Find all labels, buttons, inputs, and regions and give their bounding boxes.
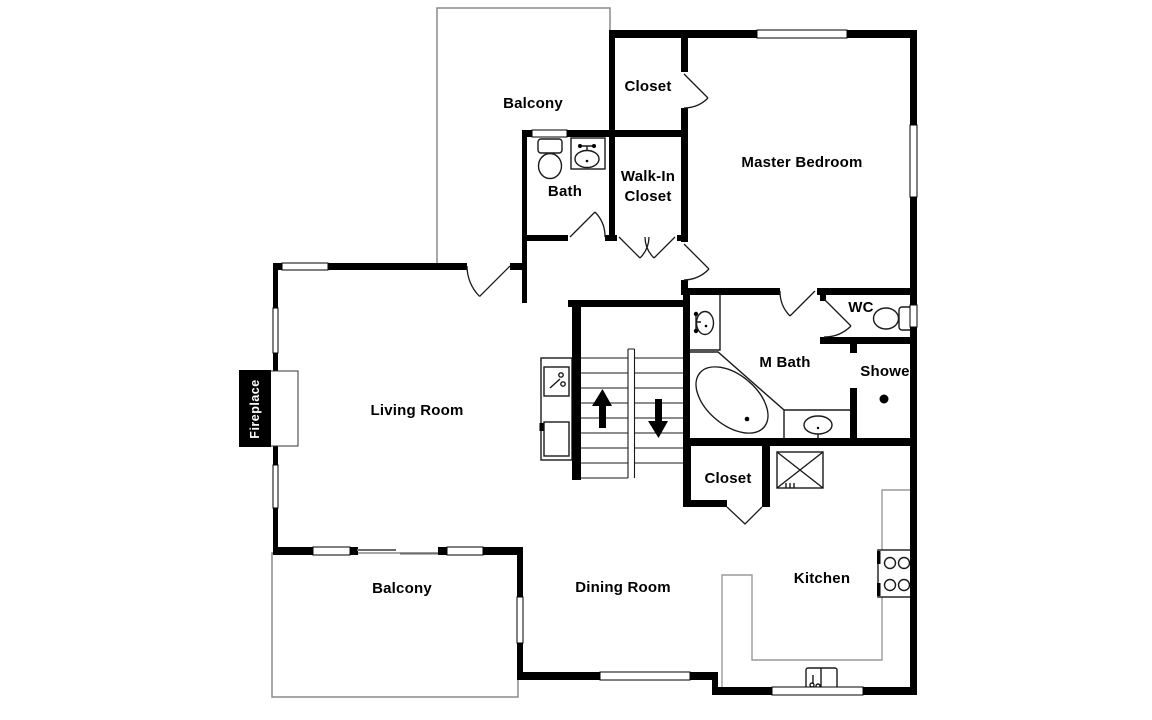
window — [532, 130, 567, 137]
label-wc: WC — [848, 299, 873, 316]
wall-segment — [681, 108, 688, 242]
stove — [877, 550, 915, 597]
wall-segment — [609, 30, 615, 240]
wall-segment — [683, 438, 917, 446]
wall-segment — [681, 30, 688, 72]
label-balcony-bottom: Balcony — [372, 580, 432, 597]
mbath-vanity-sink — [686, 295, 720, 350]
label-closet-middle: Closet — [704, 470, 751, 487]
wall-segment — [690, 672, 718, 680]
fireplace-hearth — [270, 371, 298, 446]
floor-plan: Fireplace Balcony Closet Master Bedroom … — [0, 0, 1152, 720]
wall-segment — [328, 263, 467, 270]
wall-segment — [522, 130, 532, 137]
door-swing-living — [467, 266, 510, 296]
door-bifold-closet — [727, 507, 762, 524]
wall-segment — [847, 30, 917, 38]
wall-segment — [522, 235, 568, 241]
shower-head-icon — [880, 395, 889, 404]
staircase — [581, 349, 683, 478]
label-shower: Shower — [860, 363, 915, 380]
wall-segment — [762, 445, 770, 507]
bath-sink — [571, 138, 605, 169]
window — [273, 465, 278, 508]
wc-toilet — [874, 307, 914, 330]
window — [273, 308, 278, 353]
wall-segment — [517, 672, 600, 680]
kitchen-sink — [806, 668, 837, 689]
window — [447, 547, 483, 555]
label-m-bath: M Bath — [759, 354, 810, 371]
wall-segment — [273, 263, 282, 270]
fireplace-label: Fireplace — [248, 379, 262, 438]
window — [313, 547, 350, 555]
wall-segment — [273, 547, 313, 555]
wall-segment — [273, 508, 278, 553]
wall-segment — [910, 30, 917, 125]
wall-segment — [350, 547, 358, 555]
label-kitchen: Kitchen — [794, 570, 850, 587]
window — [910, 125, 917, 197]
floor-plan-drawing: Fireplace Balcony Closet Master Bedroom … — [0, 0, 1152, 720]
toilet — [538, 139, 562, 179]
window — [282, 263, 328, 270]
door-swing-walkin-right — [645, 237, 675, 258]
wall-segment — [817, 288, 910, 295]
wall-segment — [567, 130, 683, 137]
wall-segment — [568, 300, 690, 307]
wall-segment — [510, 263, 523, 270]
balcony-bottom-outline — [272, 553, 518, 697]
wall-segment — [605, 235, 617, 241]
window — [517, 597, 523, 643]
label-balcony-top: Balcony — [503, 95, 563, 112]
wall-segment — [522, 130, 527, 303]
wall-segment — [686, 288, 780, 295]
wall-segment — [850, 344, 857, 353]
door-swing-wc — [824, 299, 851, 337]
wall-segment — [683, 445, 691, 507]
window — [600, 672, 690, 680]
label-closet-top: Closet — [624, 78, 671, 95]
wall-segment — [483, 547, 523, 555]
window — [772, 687, 863, 695]
pantry-cabinet-x — [777, 452, 823, 488]
window — [910, 305, 917, 327]
wall-segment — [850, 388, 857, 445]
wall-segment — [712, 687, 772, 695]
label-living-room: Living Room — [370, 402, 463, 419]
wall-segment — [517, 643, 523, 677]
door-swing-walkin-left — [619, 237, 649, 258]
door-swing-mbath — [780, 291, 815, 316]
wall-segment — [820, 337, 910, 344]
wall-segment — [438, 547, 447, 555]
mbath-second-sink — [784, 410, 852, 442]
label-bath: Bath — [548, 183, 582, 200]
wet-bar-sink — [540, 358, 573, 460]
wall-segment — [910, 327, 917, 695]
wall-segment — [683, 500, 727, 507]
fireplace: Fireplace — [239, 370, 298, 447]
door-swing-closet-top — [684, 74, 708, 108]
wall-segment — [273, 447, 278, 465]
door-swing-master — [684, 244, 709, 280]
wall-segment — [572, 302, 581, 480]
label-walkin-line1: Walk-In — [621, 168, 675, 185]
wall-segment — [910, 197, 917, 305]
label-master-bedroom: Master Bedroom — [741, 154, 862, 171]
label-dining-room: Dining Room — [575, 579, 671, 596]
wall-segment — [683, 295, 690, 445]
wall-segment — [273, 353, 278, 371]
label-walkin-line2: Closet — [624, 188, 671, 205]
door-swing-bath — [570, 212, 605, 237]
window — [757, 30, 847, 38]
stairs-up-arrow-icon — [592, 389, 612, 428]
wall-segment — [863, 687, 917, 695]
